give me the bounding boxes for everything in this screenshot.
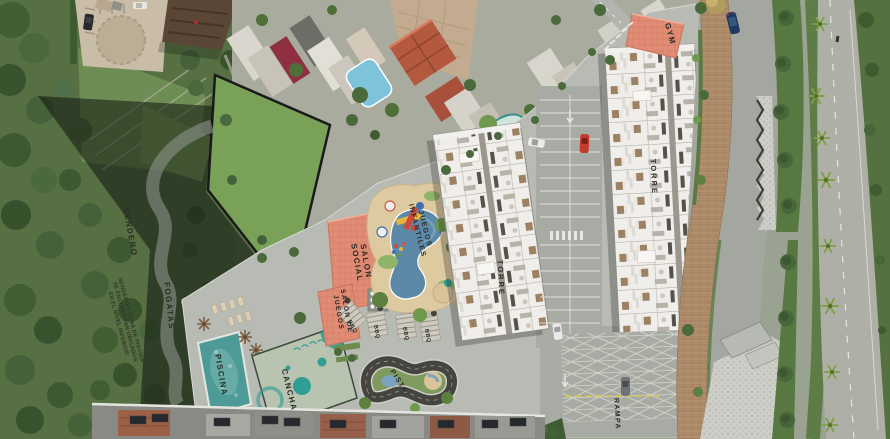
label-torre-1: TORRE [495, 260, 506, 297]
red-car [579, 134, 589, 153]
site-plan-art [0, 0, 890, 439]
site-plan-rendering: SENDERO FOGATAS SENDERO Y ZONA DE PISCIN… [0, 0, 890, 439]
label-torre-2: TORRE [648, 159, 659, 196]
right-corridor [676, 0, 890, 439]
gray-car [621, 377, 630, 396]
umbrella-icon [238, 330, 252, 344]
white-car-photo [133, 2, 147, 9]
umbrella-icon [197, 317, 211, 331]
label-rampa: RAMPA [611, 398, 621, 431]
